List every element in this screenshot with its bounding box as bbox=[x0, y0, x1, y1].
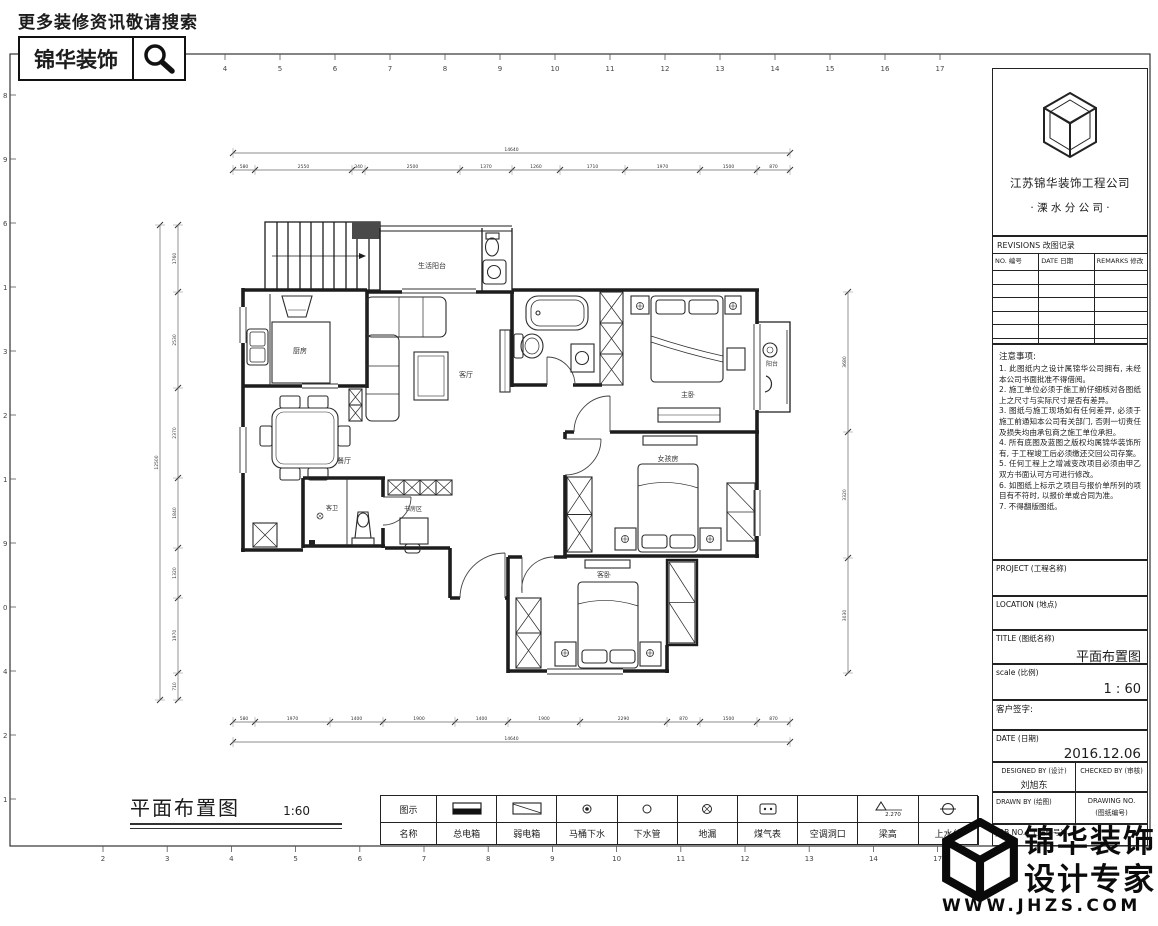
legend-item-name: 梁高 bbox=[858, 823, 918, 845]
ruler-number: 9 bbox=[3, 156, 7, 164]
room-label: 生活阳台 bbox=[418, 261, 446, 270]
ruler-number: 12 bbox=[661, 65, 670, 73]
sheet-canvas: 1234567891011121314151617234567891011121… bbox=[0, 0, 1158, 926]
ruler-number: 6 bbox=[358, 855, 363, 863]
legend-symbol-header: 图示 bbox=[381, 796, 437, 823]
ruler-number: 9 bbox=[3, 540, 7, 548]
dimension-value: 1900 bbox=[413, 716, 425, 722]
legend-item-name: 地漏 bbox=[678, 823, 738, 845]
dimension-value: 870 bbox=[769, 164, 778, 170]
room-label: 客卧 bbox=[597, 570, 611, 579]
dimension-value: 1500 bbox=[723, 716, 735, 722]
ruler-number: 9 bbox=[498, 65, 502, 73]
room-label: 主卧 bbox=[681, 390, 695, 399]
ruler-number: 13 bbox=[805, 855, 814, 863]
ruler-number: 6 bbox=[333, 65, 338, 73]
ruler-number: 14 bbox=[869, 855, 878, 863]
legend-table: 图示2.270名称总电箱弱电箱马桶下水下水管地漏煤气表空调洞口梁高上水位 bbox=[380, 795, 978, 845]
ruler-number: 4 bbox=[223, 65, 228, 73]
legend-item-name: 空调洞口 bbox=[798, 823, 858, 845]
legend-item-name: 下水管 bbox=[618, 823, 678, 845]
dimension-value: 870 bbox=[679, 716, 688, 722]
ruler-number: 4 bbox=[3, 668, 8, 676]
dimension-value: 14640 bbox=[504, 147, 518, 153]
dimension-value: 12500 bbox=[154, 455, 160, 469]
dimension-value: 1370 bbox=[480, 164, 492, 170]
legend-symbol-main-panel bbox=[437, 796, 497, 823]
dimension-value: 1710 bbox=[587, 164, 599, 170]
footer-brand: 锦华装饰 设计专家 WWW.JHZS.COM bbox=[936, 816, 1158, 926]
ruler-number: 10 bbox=[551, 65, 560, 73]
ruler-number: 5 bbox=[293, 855, 297, 863]
legend-symbol-drain-pipe bbox=[618, 796, 678, 823]
room-label: 书房区 bbox=[404, 505, 422, 513]
room-label: 客卫 bbox=[326, 504, 338, 512]
brand-name: 锦华装饰 bbox=[20, 38, 134, 79]
dimension-value: 3320 bbox=[842, 489, 848, 501]
dimension-value: 2370 bbox=[172, 427, 178, 439]
legend-item-name: 马桶下水 bbox=[557, 823, 617, 845]
ruler-number: 3 bbox=[165, 855, 169, 863]
dimension-value: 2500 bbox=[407, 164, 419, 170]
plan-title-block: 平面布置图 1:60 bbox=[130, 792, 345, 829]
ruler-number: 8 bbox=[486, 855, 490, 863]
ruler-number: 2 bbox=[3, 732, 7, 740]
ruler-number: 1 bbox=[3, 476, 7, 484]
dimension-value: 2290 bbox=[618, 716, 630, 722]
ruler-number: 1 bbox=[3, 284, 7, 292]
dimension-value: 580 bbox=[240, 164, 249, 170]
room-label: 客厅 bbox=[459, 370, 473, 379]
ruler-number: 0 bbox=[3, 604, 7, 612]
dimension-value: 1970 bbox=[287, 716, 299, 722]
stair-landing bbox=[352, 222, 380, 239]
dimension-value: 2530 bbox=[172, 334, 178, 346]
ruler-number: 7 bbox=[388, 65, 392, 73]
room-label: 女孩房 bbox=[658, 454, 679, 463]
legend-item-name: 弱电箱 bbox=[497, 823, 557, 845]
ruler-number: 15 bbox=[826, 65, 835, 73]
legend-item-name: 煤气表 bbox=[738, 823, 798, 845]
ruler-number: 7 bbox=[422, 855, 426, 863]
dimension-value: 1760 bbox=[172, 253, 178, 265]
ruler-number: 4 bbox=[229, 855, 234, 863]
ruler-number: 13 bbox=[716, 65, 725, 73]
dimension-value: 1970 bbox=[172, 630, 178, 642]
drawing-sheet: { "promo": { "hint": "更多装修资讯敬请搜索", "bran… bbox=[0, 0, 1158, 926]
svg-text:2.270: 2.270 bbox=[885, 812, 901, 818]
dimension-value: 1900 bbox=[538, 716, 550, 722]
ruler-number: 14 bbox=[771, 65, 780, 73]
ruler-number: 16 bbox=[881, 65, 890, 73]
ruler-number: 11 bbox=[606, 65, 615, 73]
dimension-value: 870 bbox=[769, 716, 778, 722]
dimension-lines: 5802550340250013701260171019701500870146… bbox=[154, 147, 853, 747]
footer-cube-icon bbox=[936, 818, 1024, 902]
legend-symbol-toilet-drain bbox=[557, 796, 617, 823]
room-label: 阳台 bbox=[766, 360, 778, 368]
dimension-value: 580 bbox=[240, 716, 249, 722]
ruler-number: 11 bbox=[676, 855, 685, 863]
ruler-number: 2 bbox=[101, 855, 105, 863]
dimension-value: 340 bbox=[354, 164, 363, 170]
ruler-number: 3 bbox=[3, 348, 7, 356]
dimension-value: 2550 bbox=[298, 164, 310, 170]
ruler-number: 9 bbox=[550, 855, 554, 863]
footer-brand-tagline: 设计专家 bbox=[1024, 854, 1156, 899]
ruler-number: 5 bbox=[278, 65, 282, 73]
plan-title: 平面布置图 bbox=[130, 796, 240, 820]
legend-item-name: 总电箱 bbox=[437, 823, 497, 845]
legend-symbol-beam-height: 2.270 bbox=[858, 796, 918, 823]
ruler-number: 17 bbox=[936, 65, 945, 73]
room-label: 餐厅 bbox=[337, 456, 351, 465]
ruler-number: 6 bbox=[3, 220, 8, 228]
legend-symbol-gas-meter bbox=[738, 796, 798, 823]
brand-search-box: 锦华装饰 bbox=[18, 36, 186, 81]
footer-brand-site: WWW.JHZS.COM bbox=[942, 896, 1141, 916]
ruler-number: 12 bbox=[741, 855, 750, 863]
ruler-number: 10 bbox=[612, 855, 621, 863]
dimension-value: 3680 bbox=[842, 356, 848, 368]
room-label: 厨房 bbox=[293, 346, 307, 355]
dimension-value: 1400 bbox=[476, 716, 488, 722]
dimension-value: 1400 bbox=[351, 716, 363, 722]
legend-symbol-ac-hole bbox=[798, 796, 858, 823]
dimension-value: 1840 bbox=[172, 507, 178, 519]
sheet-frame bbox=[10, 54, 1150, 846]
dimension-value: 3030 bbox=[842, 610, 848, 622]
dimension-value: 1500 bbox=[723, 164, 735, 170]
ruler-number: 2 bbox=[3, 412, 7, 420]
wardrobes bbox=[253, 292, 755, 668]
ruler-number: 1 bbox=[3, 796, 7, 804]
dimension-value: 1260 bbox=[530, 164, 542, 170]
dimension-value: 710 bbox=[172, 682, 178, 691]
plan-title-underline bbox=[130, 823, 342, 829]
ruler-number: 8 bbox=[3, 92, 7, 100]
plan-scale: 1:60 bbox=[283, 804, 310, 818]
legend-symbol-floor-drain bbox=[678, 796, 738, 823]
search-icon bbox=[134, 38, 184, 79]
floor-plan bbox=[240, 222, 790, 674]
legend-name-header: 名称 bbox=[381, 823, 437, 845]
dimension-value: 1970 bbox=[657, 164, 669, 170]
dimension-value: 14640 bbox=[504, 736, 518, 742]
dimension-value: 1320 bbox=[172, 567, 178, 579]
top-balcony bbox=[380, 226, 512, 292]
legend-symbol-weak-panel bbox=[497, 796, 557, 823]
ruler-number: 8 bbox=[443, 65, 447, 73]
